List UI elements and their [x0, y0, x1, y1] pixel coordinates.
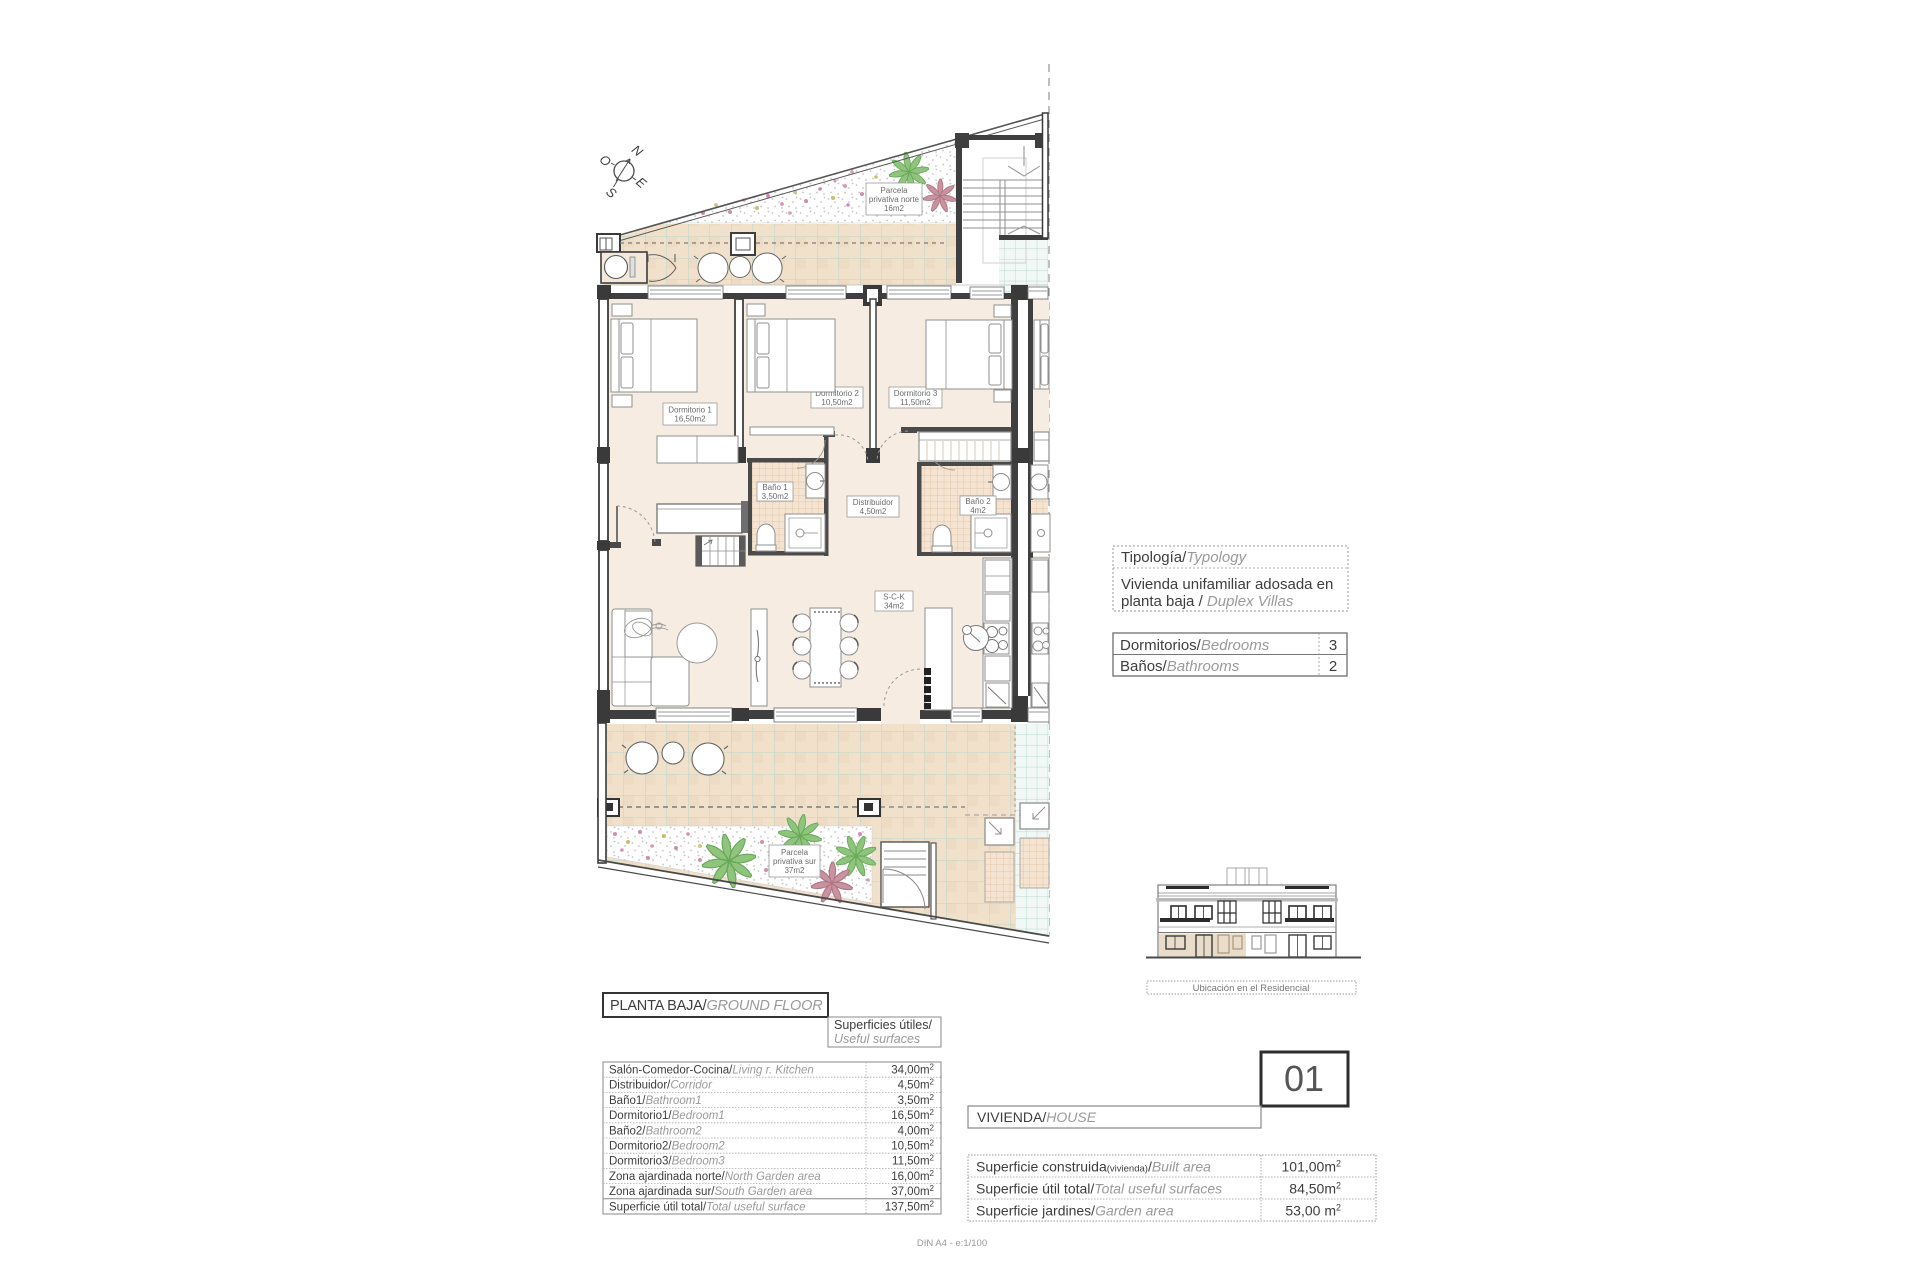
svg-text:Vivienda unifamiliar adosada e: Vivienda unifamiliar adosada en	[1121, 576, 1333, 593]
svg-text:37m2: 37m2	[784, 866, 805, 875]
svg-text:Superficies útiles/: Superficies útiles/	[834, 1018, 932, 1032]
svg-text:O: O	[597, 152, 614, 170]
svg-text:Superficie jardines/Garden are: Superficie jardines/Garden area	[976, 1203, 1174, 1219]
svg-text:S: S	[603, 184, 620, 201]
svg-text:16,50m2: 16,50m2	[674, 415, 706, 424]
svg-text:01: 01	[1284, 1058, 1324, 1099]
svg-text:Dormitorio3/Bedroom3: Dormitorio3/Bedroom3	[609, 1156, 725, 1168]
svg-text:Superficie construida(vivienda: Superficie construida(vivienda)/Built ar…	[976, 1159, 1211, 1175]
svg-text:10,50m2: 10,50m2	[821, 398, 853, 407]
svg-text:4m2: 4m2	[970, 506, 986, 515]
svg-text:101,00m2: 101,00m2	[1282, 1159, 1342, 1175]
svg-text:Salón-Comedor-Cocina/Living r.: Salón-Comedor-Cocina/Living r. Kitchen	[609, 1065, 814, 1077]
svg-text:Dormitorios/Bedrooms: Dormitorios/Bedrooms	[1120, 637, 1270, 654]
svg-text:Zona ajardinada sur/South Gard: Zona ajardinada sur/South Garden area	[609, 1186, 812, 1198]
svg-text:16,50m2: 16,50m2	[891, 1108, 934, 1122]
svg-text:Dormitorio1/Bedroom1: Dormitorio1/Bedroom1	[609, 1110, 725, 1122]
svg-text:Ubicación en el Residencial: Ubicación en el Residencial	[1193, 983, 1310, 994]
svg-text:11,50m2: 11,50m2	[900, 398, 931, 407]
svg-text:Dormitorio 3: Dormitorio 3	[894, 389, 938, 398]
svg-text:E: E	[633, 174, 650, 191]
svg-text:53,00 m2: 53,00 m2	[1285, 1203, 1341, 1219]
svg-text:16m2: 16m2	[884, 204, 905, 213]
svg-text:11,50m2: 11,50m2	[892, 1154, 935, 1168]
svg-text:Distribuidor: Distribuidor	[853, 498, 894, 507]
svg-text:Dormitorio2/Bedroom2: Dormitorio2/Bedroom2	[609, 1141, 725, 1153]
svg-text:4,00m2: 4,00m2	[898, 1123, 935, 1137]
svg-text:N: N	[629, 142, 646, 160]
svg-text:Parcela: Parcela	[880, 186, 908, 195]
svg-text:Dormitorio 1: Dormitorio 1	[668, 406, 712, 415]
svg-text:Parcela: Parcela	[781, 848, 809, 857]
svg-text:privativa norte: privativa norte	[869, 195, 920, 204]
svg-text:34m2: 34m2	[884, 602, 905, 611]
svg-text:privativa sur: privativa sur	[773, 857, 816, 866]
svg-text:4,50m2: 4,50m2	[898, 1078, 935, 1092]
svg-text:Baños/Bathrooms: Baños/Bathrooms	[1120, 658, 1240, 675]
svg-text:Baño2/Bathroom2: Baño2/Bathroom2	[609, 1125, 702, 1137]
svg-text:3,50m2: 3,50m2	[762, 492, 789, 501]
svg-text:DIN A4 - e:1/100: DIN A4 - e:1/100	[917, 1238, 987, 1249]
svg-text:3,50m2: 3,50m2	[898, 1093, 935, 1107]
svg-text:Useful surfaces: Useful surfaces	[834, 1032, 920, 1046]
svg-text:34,00m2: 34,00m2	[891, 1063, 934, 1077]
svg-text:137,50m2: 137,50m2	[885, 1199, 935, 1213]
svg-text:PLANTA BAJA/GROUND FLOOR: PLANTA BAJA/GROUND FLOOR	[610, 998, 823, 1014]
svg-text:4,50m2: 4,50m2	[860, 507, 887, 516]
svg-text:Tipología/Typology: Tipología/Typology	[1121, 549, 1248, 566]
svg-text:Baño 2: Baño 2	[965, 497, 991, 506]
svg-text:Distribuidor/Corridor: Distribuidor/Corridor	[609, 1080, 713, 1092]
svg-text:10,50m2: 10,50m2	[891, 1139, 934, 1153]
svg-text:Baño 1: Baño 1	[762, 483, 788, 492]
svg-text:VIVIENDA/HOUSE: VIVIENDA/HOUSE	[977, 1109, 1097, 1125]
svg-text:S-C-K: S-C-K	[883, 593, 905, 602]
svg-text:Baño1/Bathroom1: Baño1/Bathroom1	[609, 1095, 702, 1107]
svg-text:2: 2	[1329, 658, 1337, 675]
svg-text:Superficie útil total/Total us: Superficie útil total/Total useful surfa…	[609, 1201, 805, 1213]
svg-text:planta baja / Duplex Villas: planta baja / Duplex Villas	[1121, 593, 1294, 610]
svg-text:37,00m2: 37,00m2	[891, 1184, 934, 1198]
svg-text:16,00m2: 16,00m2	[891, 1169, 934, 1183]
svg-text:Zona ajardinada norte/North Ga: Zona ajardinada norte/North Garden area	[609, 1171, 821, 1183]
svg-text:84,50m2: 84,50m2	[1289, 1181, 1341, 1197]
svg-text:Superficie útil total/Total us: Superficie útil total/Total useful surfa…	[976, 1181, 1222, 1197]
svg-text:3: 3	[1329, 637, 1337, 654]
